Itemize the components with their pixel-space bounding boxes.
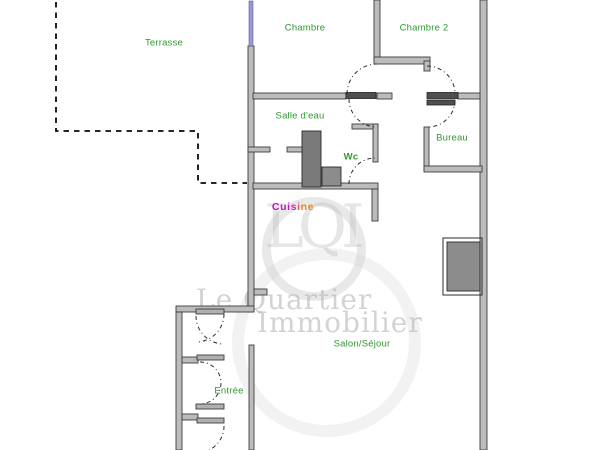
wall-closet-stub-2 [182,414,198,420]
arc-chambre-door [347,64,377,94]
wall-bath-stub-right [287,147,303,152]
room-label-chambre: Chambre [285,23,325,34]
wall-bath-stub-left [248,147,270,152]
arc-closet-2 [200,362,221,404]
door-leaf-chambre2 [427,93,458,99]
terrace-boundary-dashed [56,2,247,183]
wall-wc-right [373,124,378,162]
wall-entry-right [249,345,254,450]
arc-closet-1a [196,314,224,342]
window-marker [249,1,253,46]
walls [176,0,487,450]
door-leaf-bureau [427,100,455,105]
room-label-salle-deau: Salle d'eau [276,111,325,122]
arc-closet-1b [196,316,224,344]
wall-left-outer [248,46,254,312]
wall-hallway-c [458,93,480,99]
wall-bureau-left [424,127,429,171]
wall-hallway-a [253,93,346,99]
room-label-bureau: Bureau [436,133,468,144]
floorplan-svg [0,0,600,450]
room-label-wc: Wc [344,152,359,163]
closet-door-leaf-1 [196,309,224,314]
shower-block [302,131,321,187]
floorplan-page: LQI Le Quartier Immobilier [0,0,600,450]
wall-kitchen-right [372,189,378,221]
wall-closet-stub-1 [182,357,198,363]
wall-entry-left [176,312,182,450]
room-label-salon: Salon/Séjour [334,339,391,350]
wall-kitchen-stub [254,289,267,295]
arc-chambre2-door [427,66,455,94]
chimney-block [447,242,480,291]
fixtures [302,131,482,295]
wall-hallway-b [377,93,392,99]
room-label-terrasse: Terrasse [145,38,183,49]
door-leaf-chambre [346,93,376,99]
closet-door-leaf-3 [196,404,224,409]
door-leaves [196,93,458,424]
room-label-chambre2: Chambre 2 [400,23,449,34]
room-label-entree: Entrée [214,386,243,397]
room-label-cuisine: Cuisine [272,201,314,213]
closet-door-leaf-2 [197,355,224,360]
wall-between-bedrooms [374,0,380,62]
closet-door-leaf-4 [197,418,224,423]
arc-bath-door [349,99,377,127]
wall-bureau-bottom [424,166,482,172]
wall-chambre2-jog-h [374,57,430,64]
arc-closet-3 [197,426,224,450]
wall-right-outer [480,0,487,450]
wc-fixture-block [322,167,341,186]
